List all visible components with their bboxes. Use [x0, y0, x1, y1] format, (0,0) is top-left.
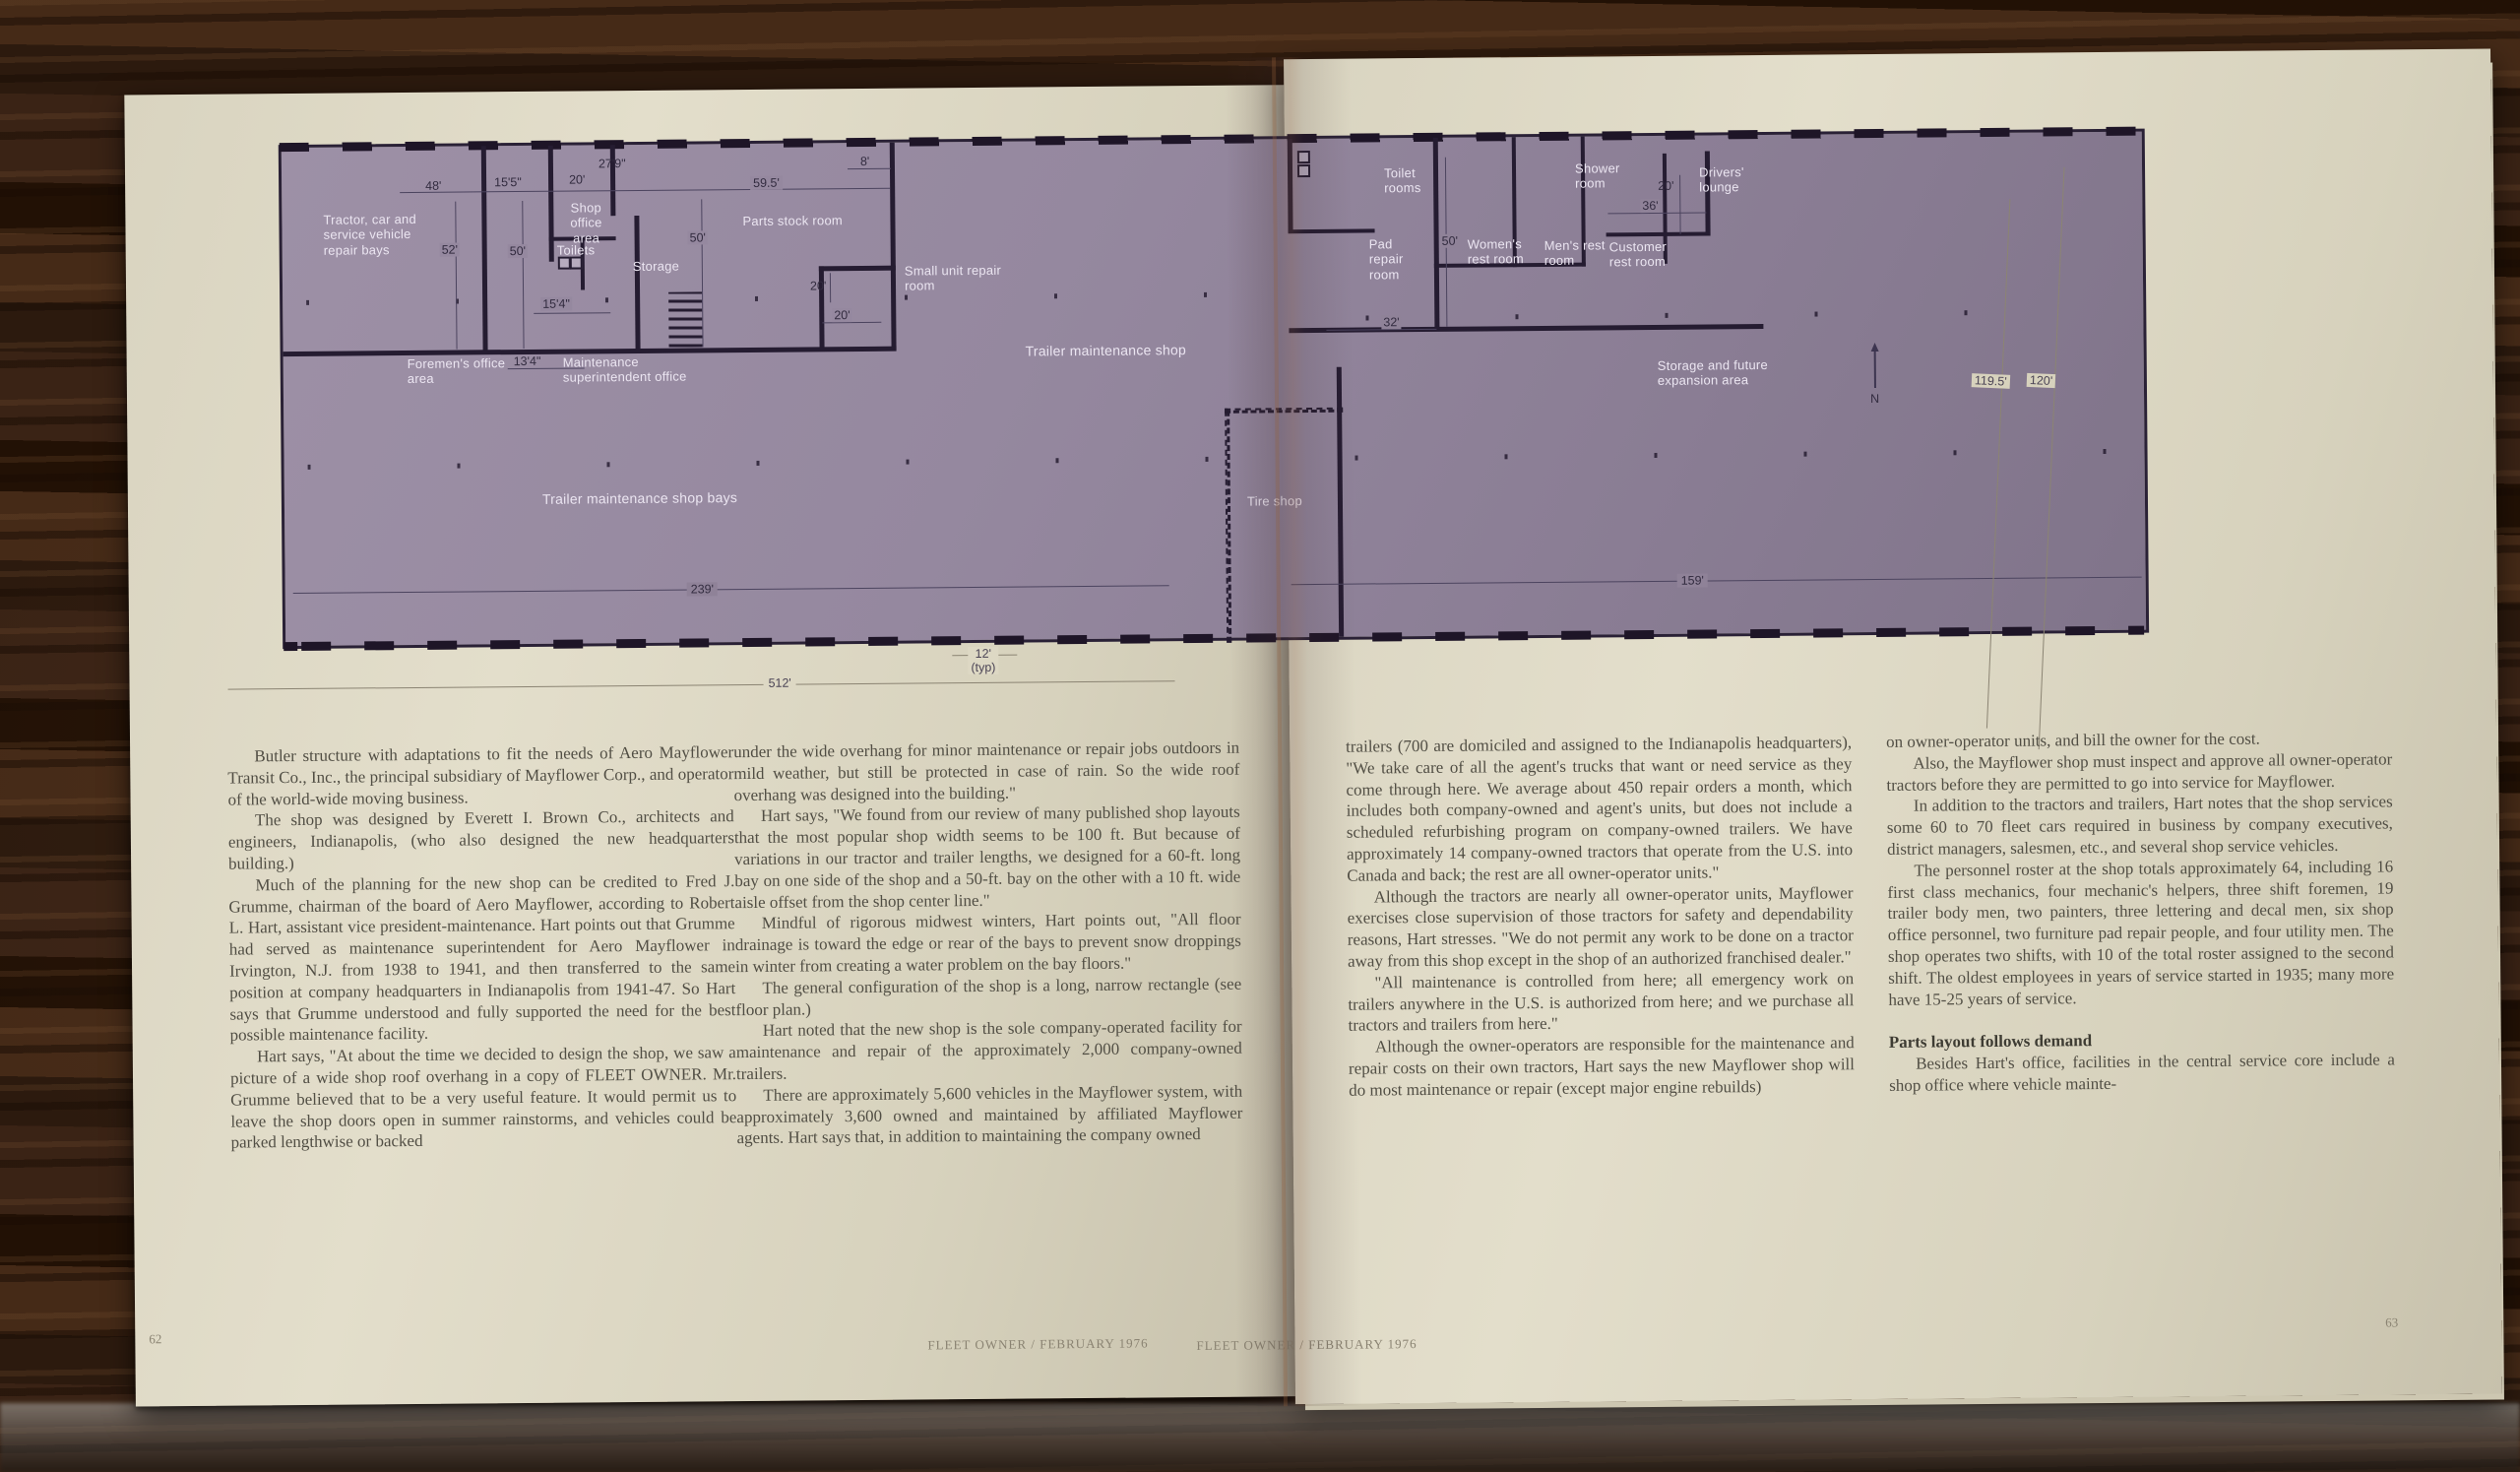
wall-segment [1606, 231, 1708, 236]
toilet-fixture [1297, 164, 1310, 177]
paragraph: Mindful of rigorous midwest winters, Har… [735, 909, 1242, 978]
room-label-mens-rest: Men's rest room [1544, 237, 1615, 268]
dimension-line [293, 585, 1169, 594]
paragraph: under the wide overhang for minor mainte… [733, 737, 1240, 806]
room-label-shower: Shower room [1575, 160, 1636, 191]
column-markers-row [1365, 309, 2113, 321]
paragraph: Also, the Mayflower shop must inspect an… [1886, 748, 2392, 796]
article-column-3: trailers (700 are domiciled and assigned… [1346, 732, 1855, 1101]
dim-15-4: 15'4" [540, 297, 572, 311]
wall-segment [1288, 139, 1293, 232]
wall-segment [819, 266, 896, 272]
column-markers-row [306, 292, 1251, 305]
toilet-fixture [570, 256, 583, 269]
dim-27-9: 27'9" [598, 157, 626, 170]
paragraph: The general configuration of the shop is… [735, 973, 1241, 1020]
dimension-line [1291, 577, 2142, 586]
dim-512: 512' [763, 676, 795, 690]
dim-8: 8' [860, 155, 869, 168]
room-label-foremens-office: Foremen's office area [408, 355, 506, 387]
article-column-2: under the wide overhang for minor mainte… [733, 737, 1243, 1150]
dim-50c: 50' [1440, 234, 1460, 248]
paragraph: Hart says, "At about the time we decided… [230, 1042, 737, 1153]
dim-239: 239' [687, 582, 718, 596]
paragraph: Although the tractors are nearly all own… [1347, 882, 1854, 973]
tire-shop-dashed-wall [1225, 411, 1231, 643]
paragraph: trailers (700 are domiciled and assigned… [1346, 732, 1853, 886]
floor-plan: N Tractor, car and service vehicle repai… [279, 129, 2149, 650]
wall-segment [548, 146, 554, 262]
paragraph: Although the owner-operators are respons… [1349, 1032, 1856, 1101]
paragraph: "All maintenance is controlled from here… [1348, 968, 1855, 1037]
page-number-left: 62 [149, 1331, 161, 1347]
dim-52: 52' [440, 243, 460, 257]
paragraph: Besides Hart's office, facilities in the… [1889, 1050, 2395, 1097]
wall-segment [481, 146, 488, 352]
page-number-right: 63 [2385, 1314, 2398, 1330]
dimension-line [1679, 175, 1681, 234]
room-label-tire-shop: Tire shop [1247, 493, 1302, 509]
paragraph: The personnel roster at the shop totals … [1887, 856, 2394, 1010]
room-label-toilet-rooms: Toilet rooms [1384, 165, 1443, 196]
room-label-tractor-bays: Tractor, car and service vehicle repair … [323, 212, 439, 258]
footer-right: FLEET OWNER / FEBRUARY 1976 [1196, 1336, 1417, 1354]
tire-shop-dashed-wall [1225, 408, 1343, 414]
dim-32: 32' [1381, 315, 1401, 329]
paragraph: Hart noted that the new shop is the sole… [736, 1016, 1243, 1085]
paragraph: Much of the planning for the new shop ca… [228, 870, 736, 1047]
wall-segment [634, 216, 640, 352]
dim-48: 48' [425, 179, 441, 193]
north-arrow-icon [1874, 351, 1876, 388]
dim-20b: 20' [810, 279, 826, 292]
dimension-line [400, 188, 890, 193]
room-label-pad-repair: Pad repair room [1369, 236, 1423, 282]
paragraph: Hart says, "We found from our review of … [734, 801, 1241, 913]
room-label-trailer-shop: Trailer maintenance shop [1026, 342, 1187, 359]
article-column-1: Butler structure with adaptations to fit… [227, 741, 737, 1154]
dim-119-5: 119.5' [1972, 373, 2010, 389]
dim-59-5: 59.5' [750, 176, 783, 190]
article-column-4: on owner-operator units, and bill the ow… [1886, 727, 2395, 1096]
dim-12-typ: 12' (typ) [968, 647, 998, 674]
dim-50a: 50' [508, 244, 528, 258]
dim-50b: 50' [688, 230, 708, 244]
dimension-line [455, 202, 457, 350]
paragraph: There are approximately 5,600 vehicles i… [736, 1080, 1243, 1149]
room-label-trailer-bays: Trailer maintenance shop bays [542, 489, 737, 507]
dim-20d: 20' [1658, 179, 1673, 193]
dim-159: 159' [1677, 573, 1708, 587]
room-label-toilets: Toilets [557, 242, 596, 258]
paragraph: In addition to the tractors and trailers… [1887, 792, 2394, 861]
magazine-spread: N Tractor, car and service vehicle repai… [120, 47, 2506, 1419]
dim-120: 120' [2027, 373, 2056, 388]
paragraph: The shop was designed by Everett I. Brow… [228, 806, 735, 875]
compass-north-label: N [1870, 392, 1879, 406]
toilet-fixture [1297, 151, 1310, 163]
dimension-line [522, 201, 524, 349]
dim-36: 36' [1640, 199, 1660, 213]
wall-segment [1289, 228, 1375, 233]
room-label-womens-rest: Women's rest room [1468, 236, 1539, 267]
dimension-line [830, 273, 831, 302]
wall-segment [890, 143, 897, 350]
dimension-line [701, 199, 703, 347]
room-label-maintenance-super: Maintenance superintendent office [563, 353, 711, 385]
dim-20a: 20' [569, 172, 585, 186]
room-label-parts-stock: Parts stock room [742, 213, 850, 228]
dim-15-5: 15'5" [494, 175, 522, 189]
dim-20c: 20' [832, 308, 851, 322]
room-label-drivers-lounge: Drivers' lounge [1699, 164, 1758, 195]
column-markers-row [308, 449, 2119, 470]
dim-13-4: 13'4" [514, 354, 541, 368]
footer-left: FLEET OWNER / FEBRUARY 1976 [927, 1335, 1148, 1353]
room-label-small-unit: Small unit repair room [905, 263, 1013, 294]
room-label-customer-rest: Customer rest room [1609, 239, 1688, 270]
room-label-storage-future: Storage and future expansion area [1658, 357, 1805, 389]
dimension-line [534, 312, 610, 314]
paragraph: Butler structure with adaptations to fit… [227, 741, 734, 810]
dimension-line [848, 168, 891, 169]
room-label-storage: Storage [633, 259, 679, 275]
room-label-shop-office: Shop office area [557, 200, 614, 245]
